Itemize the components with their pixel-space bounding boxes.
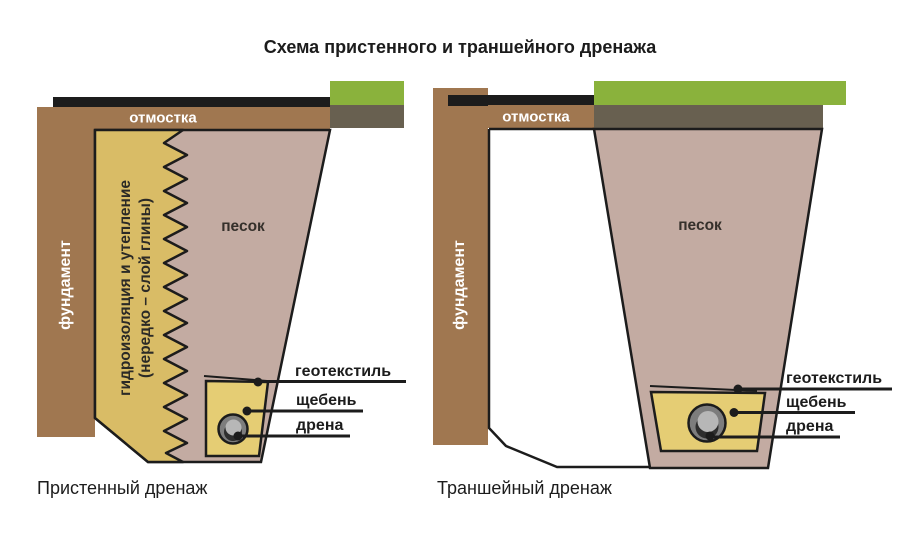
left-drain-dot: [234, 432, 243, 441]
left-waterproofing-line2: (нередко – слой глины): [136, 180, 156, 396]
right-drain-pipe-inner: [698, 411, 719, 432]
left-grass-block: [330, 81, 404, 105]
left-topsoil-block: [330, 105, 404, 128]
figure-title: Схема пристенного и траншейного дренажа: [264, 37, 656, 58]
left-gravel-dot: [243, 407, 252, 416]
right-drain-label: дрена: [786, 418, 833, 436]
right-grass-block: [594, 81, 846, 105]
left-slab-black-bar: [53, 97, 330, 107]
left-diagram-caption: Пристенный дренаж: [37, 478, 207, 499]
right-sand-label: песок: [678, 217, 722, 235]
right-drain-dot: [706, 432, 715, 441]
right-blind-area-label: отмостка: [502, 109, 570, 126]
drainage-scheme-figure: Схема пристенного и траншейного дренажа …: [0, 0, 900, 553]
left-waterproofing-line1: гидроизоляция и утепление: [116, 180, 136, 396]
right-geotextile-label: геотекстиль: [786, 370, 882, 388]
right-topsoil-block: [594, 105, 823, 128]
right-diagram-caption: Траншейный дренаж: [437, 478, 612, 499]
left-drain-label: дрена: [296, 417, 343, 435]
left-waterproofing-label: гидроизоляция и утепление (нередко – сло…: [116, 180, 156, 396]
left-gravel-label: щебень: [296, 392, 356, 410]
left-geotextile-dot: [254, 378, 263, 387]
left-sand-label: песок: [221, 218, 265, 236]
left-geotextile-label: геотекстиль: [295, 363, 391, 381]
right-gravel-label: щебень: [786, 394, 846, 412]
right-foundation-label: фундамент: [451, 240, 469, 330]
right-slab-black-bar: [448, 95, 594, 106]
right-gravel-dot: [730, 408, 739, 417]
right-geotextile-dot: [734, 385, 743, 394]
left-blind-area-label: отмостка: [129, 110, 197, 127]
left-foundation-label: фундамент: [57, 240, 75, 330]
